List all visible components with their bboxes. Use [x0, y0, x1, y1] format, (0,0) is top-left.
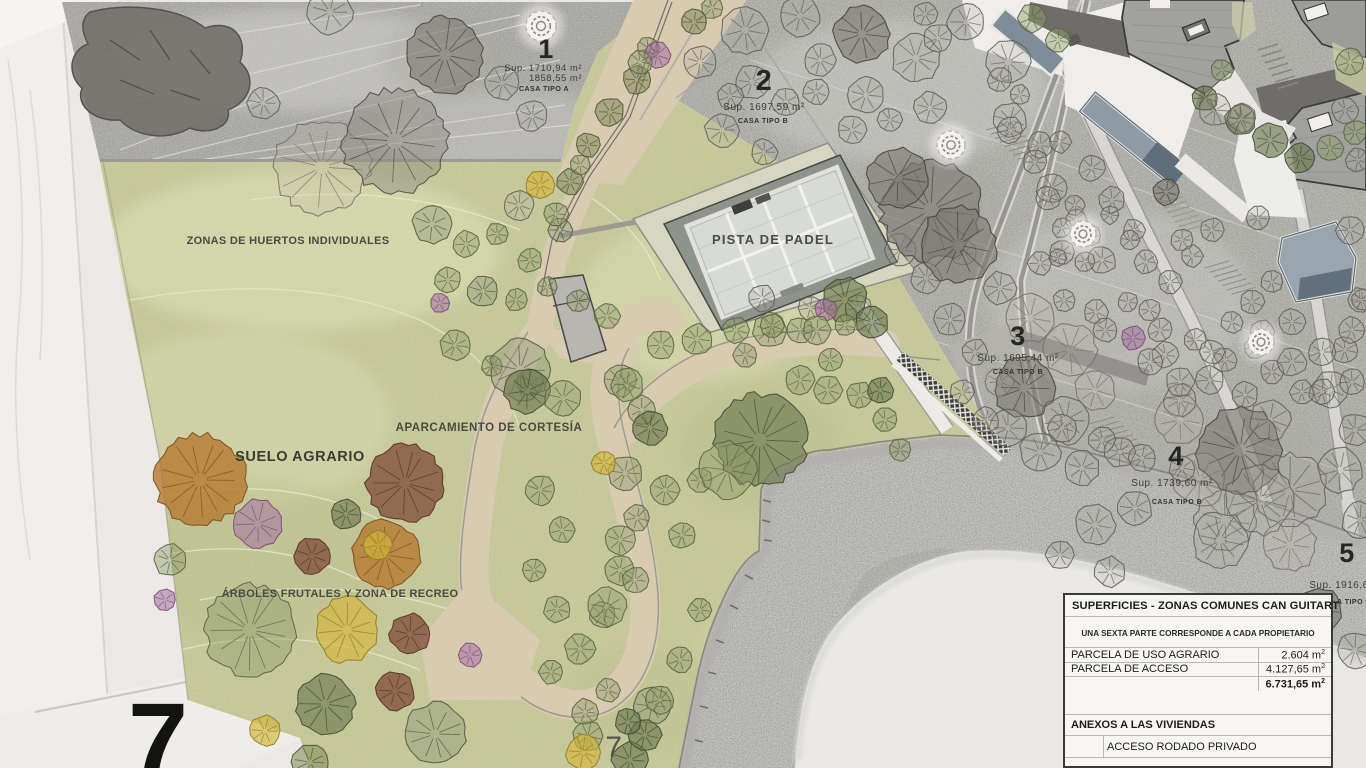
svg-text:2: 2 [756, 65, 773, 97]
svg-text:APARCAMIENTO DE CORTESÍA: APARCAMIENTO DE CORTESÍA [396, 421, 583, 434]
svg-text:4: 4 [1168, 441, 1184, 471]
svg-text:1858,55 m²: 1858,55 m² [529, 73, 582, 84]
svg-text:Sup. 1916,62: Sup. 1916,62 [1309, 580, 1366, 591]
svg-text:CASA TIPO B: CASA TIPO B [738, 118, 788, 125]
svg-text:7: 7 [128, 680, 188, 768]
svg-text:SUELO AGRARIO: SUELO AGRARIO [235, 449, 365, 465]
svg-text:A TIPO C: A TIPO C [1337, 599, 1366, 606]
svg-text:ZONAS DE HUERTOS INDIVIDUALES: ZONAS DE HUERTOS INDIVIDUALES [187, 235, 390, 247]
svg-text:3: 3 [1010, 321, 1026, 351]
svg-text:PISTA DE PADEL: PISTA DE PADEL [712, 232, 834, 247]
svg-text:5: 5 [1339, 538, 1355, 568]
svg-text:CASA TIPO A: CASA TIPO A [519, 86, 569, 93]
svg-text:7: 7 [605, 731, 622, 764]
svg-text:Sup. 1739,60 m²: Sup. 1739,60 m² [1131, 478, 1213, 489]
svg-text:Sup. 1697,59 m²: Sup. 1697,59 m² [723, 102, 805, 113]
svg-text:1: 1 [538, 34, 554, 64]
svg-text:CASA TIPO B: CASA TIPO B [993, 369, 1043, 376]
svg-text:CASA TIPO B: CASA TIPO B [1152, 499, 1202, 506]
svg-text:ÁRBOLES FRUTALES Y ZONA DE REC: ÁRBOLES FRUTALES Y ZONA DE RECREO [222, 587, 459, 600]
svg-text:Sup. 1695,44 m²: Sup. 1695,44 m² [977, 353, 1059, 364]
